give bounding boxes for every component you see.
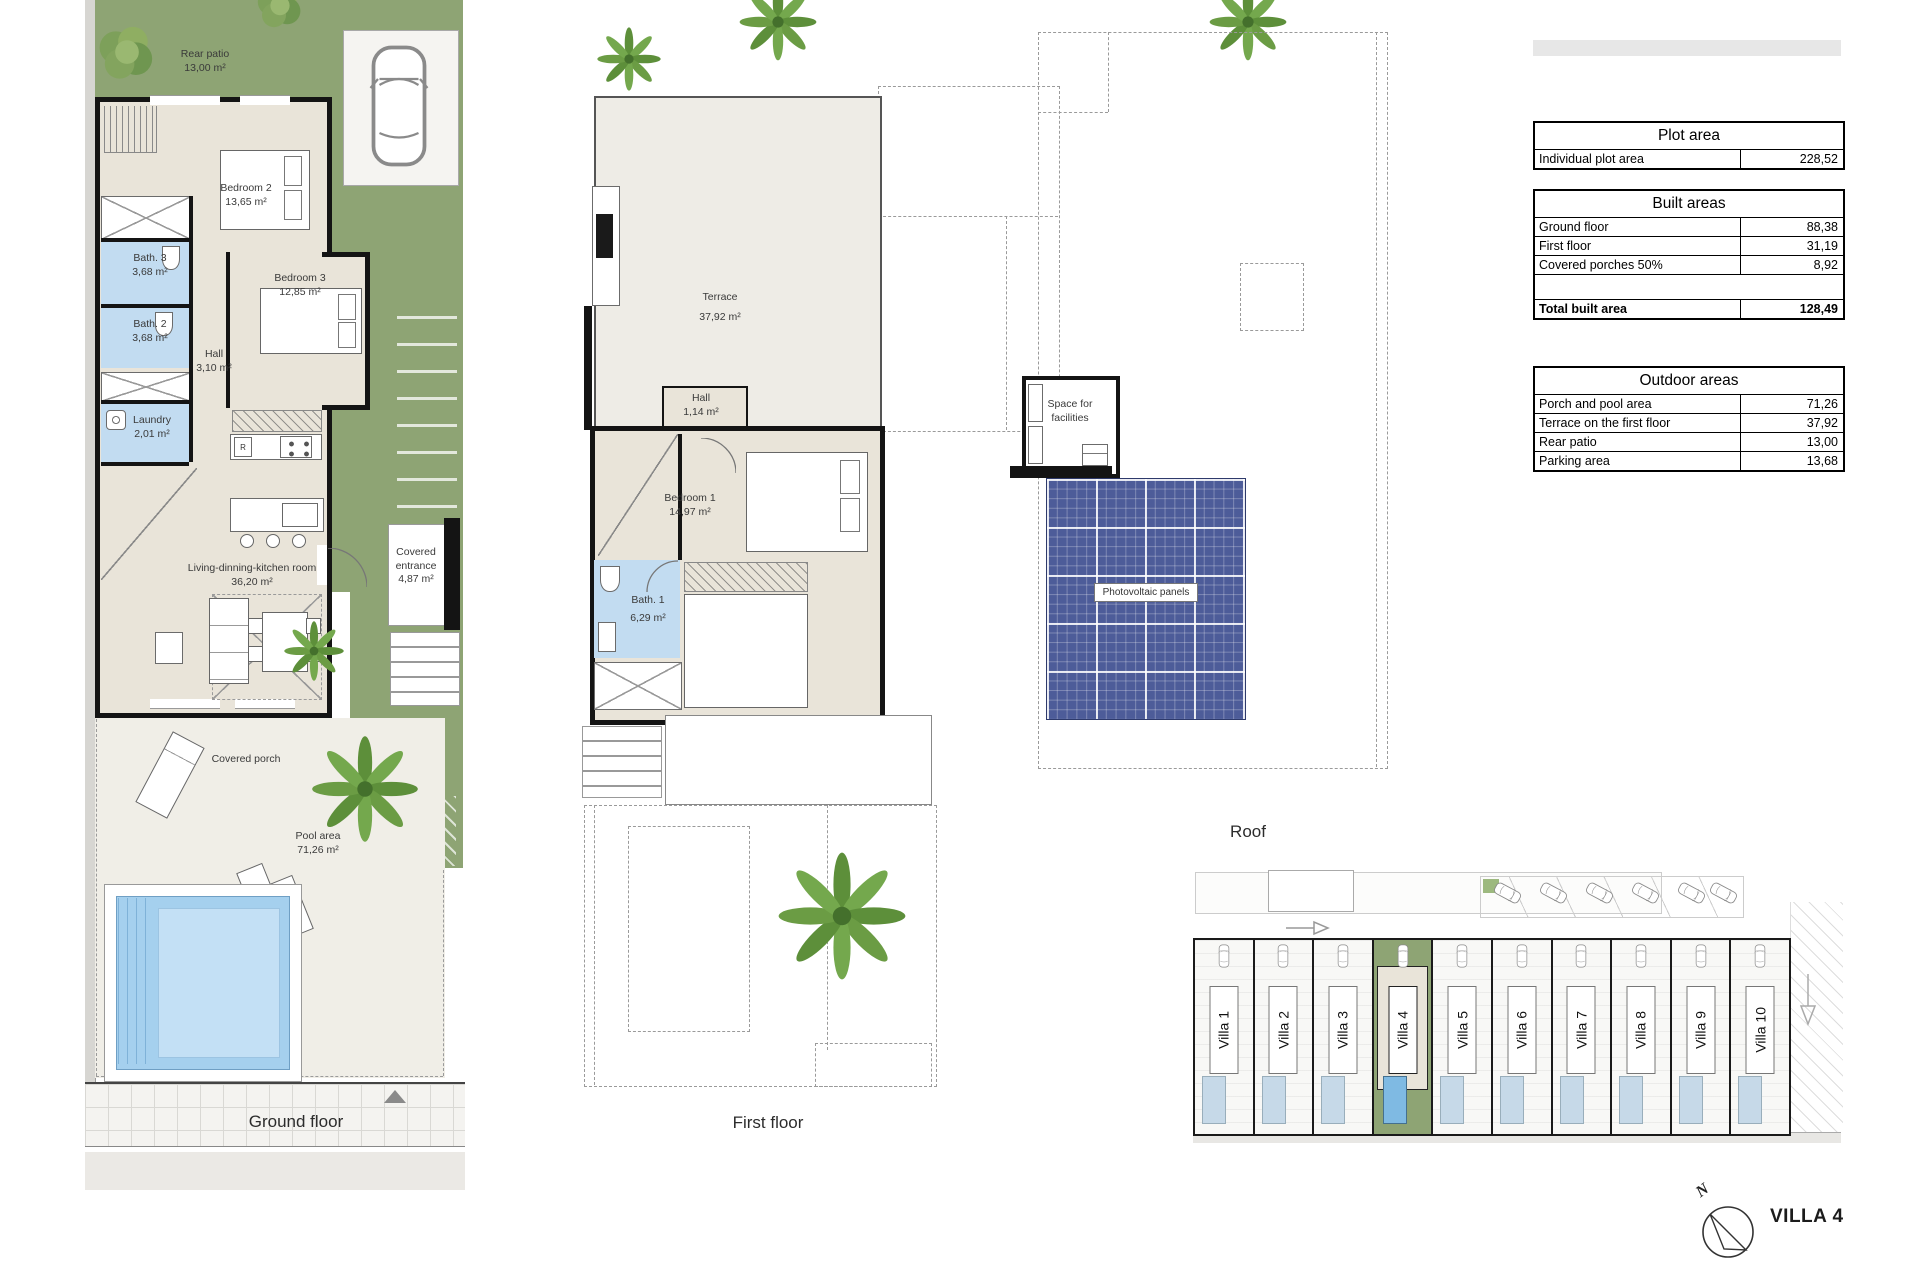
villa-label-box: Villa 3 — [1328, 986, 1357, 1074]
car-icon — [1694, 944, 1707, 968]
roof-caption: Roof — [1230, 822, 1266, 842]
bedroom2-label: Bedroom 2 13,65 m² — [220, 182, 271, 209]
row-label: First floor — [1535, 237, 1740, 255]
compass-icon — [1701, 1205, 1755, 1259]
villa-pool — [1679, 1076, 1703, 1124]
row-value: 31,19 — [1740, 237, 1843, 255]
car-icon — [1575, 944, 1588, 968]
villa-pool — [1321, 1076, 1345, 1124]
row-value: 13,68 — [1740, 452, 1843, 470]
compass-north-label: N — [1693, 1180, 1713, 1201]
villa-pool — [1383, 1076, 1407, 1124]
row-label: Parking area — [1535, 452, 1740, 470]
stool-icon — [240, 534, 254, 548]
street-arrow-icon — [1284, 920, 1330, 936]
entrance-side-wall — [444, 518, 460, 630]
pillow — [284, 156, 302, 186]
villa-pool — [1560, 1076, 1584, 1124]
row-value: 13,00 — [1740, 433, 1843, 451]
outdoor-areas-table: Outdoor areas Porch and pool area 71,26 … — [1533, 366, 1845, 472]
gf-closet-hatch — [232, 410, 322, 432]
door-arc-icon — [327, 548, 367, 588]
plot-area-table: Plot area Individual plot area 228,52 — [1533, 121, 1845, 170]
stove-icon — [280, 436, 312, 458]
ff-terrace — [594, 96, 882, 434]
chair-icon — [248, 618, 263, 634]
ff-wardrobe-hatch — [684, 562, 808, 592]
wall-divider — [189, 196, 193, 462]
pillow — [284, 190, 302, 220]
roof-outline-double — [1376, 32, 1377, 767]
villa-pool — [1619, 1076, 1643, 1124]
covered-porch-label: Covered porch — [212, 753, 281, 767]
pool-steps — [118, 898, 154, 1064]
door-gap — [235, 699, 295, 709]
table-row: Ground floor 88,38 — [1535, 217, 1843, 236]
site-villa-2: Villa 2 — [1255, 940, 1315, 1134]
toilet-icon — [600, 566, 620, 592]
row-label: Individual plot area — [1535, 150, 1740, 168]
sink-icon — [282, 503, 318, 527]
floor-plan-sheet: Rear patio 13,00 m² Bedroom 2 13,65 m² B… — [0, 0, 1920, 1280]
palm-tree-icon — [738, 0, 818, 62]
bath2-label: Bath. 2 3,68 m² — [132, 318, 168, 345]
sofa-icon — [209, 598, 249, 684]
table-title: Outdoor areas — [1535, 368, 1843, 394]
ff-hall-label: Hall 1,14 m² — [683, 392, 719, 419]
table-row: Porch and pool area 71,26 — [1535, 394, 1843, 413]
pool-projection — [628, 826, 750, 1032]
chair-icon — [248, 646, 263, 662]
ff-utility-unit — [596, 214, 613, 258]
roof-step-line — [1038, 112, 1108, 113]
table-total-row: Total built area 128,49 — [1535, 299, 1843, 318]
wall-divider — [101, 462, 189, 466]
door-gap — [150, 699, 220, 709]
pool-area-label: Pool area 71,26 m² — [296, 830, 341, 857]
site-villa-10: Villa 10 — [1731, 940, 1789, 1134]
row-value: 71,26 — [1740, 395, 1843, 413]
gf-hall-label: Hall 3,10 m² — [196, 348, 232, 375]
row-label: Covered porches 50% — [1535, 256, 1740, 274]
stool-icon — [292, 534, 306, 548]
car-icon — [1754, 944, 1767, 968]
site-villa-6: Villa 6 — [1493, 940, 1553, 1134]
car-icon — [1515, 944, 1528, 968]
villa-label-box: Villa 9 — [1686, 986, 1715, 1074]
window-gap — [150, 95, 220, 105]
door-arc-icon — [646, 560, 678, 592]
table-row: First floor 31,19 — [1535, 236, 1843, 255]
ff-void — [684, 594, 808, 708]
ff-party-wall — [584, 306, 592, 430]
villa-label-box: Villa 6 — [1507, 986, 1536, 1074]
header-bar — [1533, 40, 1841, 56]
gf-wardrobe-hatch — [104, 106, 157, 153]
entrance-door-gap — [317, 545, 327, 585]
pillow — [840, 498, 860, 532]
rear-patio-label: Rear patio 13,00 m² — [181, 48, 229, 75]
row-value: 128,49 — [1740, 300, 1843, 318]
villa-label-box: Villa 4 — [1388, 986, 1417, 1074]
laundry-label: Laundry 2,01 m² — [133, 414, 171, 441]
sink-icon — [598, 622, 616, 652]
site-villa-9: Villa 9 — [1672, 940, 1732, 1134]
sheet-title: VILLA 4 — [1770, 1206, 1844, 1228]
bush-tree-icon — [248, 0, 312, 38]
window-gap — [240, 95, 290, 105]
ff-shower — [594, 662, 682, 710]
first-floor-caption: First floor — [733, 1113, 804, 1133]
villa-label-box: Villa 10 — [1746, 986, 1775, 1074]
gf-shower3 — [101, 196, 191, 240]
table-row: Individual plot area 228,52 — [1535, 149, 1843, 168]
pv-label: Photovoltaic panels — [1103, 587, 1190, 598]
ff-roof-projection-line — [878, 216, 1058, 217]
site-villa-3: Villa 3 — [1314, 940, 1374, 1134]
bedroom3-label: Bedroom 3 12,85 m² — [274, 272, 325, 299]
ff-landing — [665, 715, 932, 805]
palm-tree-icon — [310, 734, 420, 844]
site-villa-1: Villa 1 — [1195, 940, 1255, 1134]
roof-wall-stub — [1010, 466, 1112, 478]
facilities-label: Space for facilities — [1040, 398, 1100, 425]
ff-exterior-steps — [582, 726, 662, 798]
table-row: Covered porches 50% 8,92 — [1535, 255, 1843, 274]
entrance-steps — [390, 632, 460, 706]
villa-pool — [1500, 1076, 1524, 1124]
wall-divider — [226, 252, 230, 408]
palm-tree-icon — [283, 620, 345, 682]
fridge: R — [234, 437, 252, 457]
stool-icon — [266, 534, 280, 548]
villa-pool — [1440, 1076, 1464, 1124]
site-villa-7: Villa 7 — [1553, 940, 1613, 1134]
side-table-icon — [155, 632, 183, 664]
roof-equipment — [1082, 444, 1108, 466]
villa-label-box: Villa 1 — [1209, 986, 1238, 1074]
villa-pool — [1202, 1076, 1226, 1124]
car-icon — [1396, 944, 1409, 968]
car-icon — [1277, 944, 1290, 968]
roof-step-line — [1108, 32, 1109, 112]
wall-divider — [101, 400, 189, 404]
row-value: 228,52 — [1740, 150, 1843, 168]
pool-deck-right — [350, 868, 445, 1078]
pillow — [840, 460, 860, 494]
table-title: Built areas — [1535, 191, 1843, 217]
pillow — [338, 322, 356, 348]
living-room-label: Living-dinning-kitchen room 36,20 m² — [188, 562, 316, 589]
car-icon — [1336, 944, 1349, 968]
car-icon — [1456, 944, 1469, 968]
row-label: Rear patio — [1535, 433, 1740, 451]
bush-tree-icon — [90, 18, 164, 92]
row-value: 37,92 — [1740, 414, 1843, 432]
washer-icon — [106, 410, 126, 430]
row-label: Total built area — [1535, 300, 1740, 318]
gf-stairs — [101, 468, 197, 580]
wall-divider — [101, 304, 189, 308]
villa-label-box: Villa 7 — [1567, 986, 1596, 1074]
site-villa-5: Villa 5 — [1433, 940, 1493, 1134]
site-communal-pool — [1268, 870, 1354, 912]
roof-vent — [1028, 426, 1043, 464]
bedroom1-label: Bedroom 1 14,97 m² — [664, 492, 715, 519]
row-value — [1741, 275, 1843, 299]
pv-label-box: Photovoltaic panels — [1094, 583, 1198, 602]
roof-chimney-outline — [1240, 263, 1304, 331]
pillow — [338, 294, 356, 320]
villa-label-box: Villa 5 — [1448, 986, 1477, 1074]
built-areas-table: Built areas Ground floor 88,38 First flo… — [1533, 189, 1845, 320]
projection-line — [594, 805, 595, 1085]
villa-pool — [1738, 1076, 1762, 1124]
porch-boundary-right — [443, 870, 444, 1076]
table-row: Parking area 13,68 — [1535, 451, 1843, 470]
villa-pool — [1262, 1076, 1286, 1124]
row-value: 8,92 — [1740, 256, 1843, 274]
row-label — [1535, 275, 1741, 299]
villa-label-box: Villa 2 — [1269, 986, 1298, 1074]
sidewalk-edge-line — [85, 1146, 465, 1147]
fridge-label: R — [240, 443, 246, 452]
bath3-label: Bath. 3 3,68 m² — [132, 252, 168, 279]
door-arc-icon — [700, 438, 736, 474]
wall-divider — [101, 238, 189, 242]
pool-inner — [158, 908, 280, 1058]
table-title: Plot area — [1535, 123, 1843, 149]
table-row: Rear patio 13,00 — [1535, 432, 1843, 451]
table-spacer-row — [1535, 274, 1843, 299]
porch-projection — [815, 1043, 932, 1087]
row-label: Terrace on the first floor — [1535, 414, 1740, 432]
terrace-label: Terrace 37,92 m² — [699, 288, 740, 328]
site-villa-8: Villa 8 — [1612, 940, 1672, 1134]
road-band — [85, 1152, 465, 1190]
row-label: Porch and pool area — [1535, 395, 1740, 413]
bath1-label: Bath. 1 6,29 m² — [630, 592, 666, 628]
palm-tree-icon — [596, 26, 662, 92]
entrance-marker-triangle — [384, 1090, 406, 1103]
walkway-arrow-icon — [1799, 972, 1817, 1026]
car-icon — [1634, 944, 1647, 968]
porch-boundary-left — [96, 719, 97, 1076]
villa-label-box: Villa 8 — [1626, 986, 1655, 1074]
gf-shower2 — [101, 372, 191, 402]
covered-entrance-label: Covered entrance 4,87 m² — [390, 546, 442, 587]
car-icon — [366, 42, 432, 170]
ground-floor-caption: Ground floor — [249, 1112, 344, 1132]
site-villas-row: Villa 1 Villa 2 Villa 3 Villa 4 Villa 5 … — [1193, 938, 1791, 1136]
palm-tree-icon — [776, 850, 908, 982]
site-villa-4-highlighted: Villa 4 — [1374, 940, 1434, 1134]
row-label: Ground floor — [1535, 218, 1740, 236]
pergola-stripes — [397, 292, 457, 522]
table-row: Terrace on the first floor 37,92 — [1535, 413, 1843, 432]
row-value: 88,38 — [1740, 218, 1843, 236]
ff-roof-projection-line — [1006, 216, 1007, 430]
car-icon — [1217, 944, 1230, 968]
